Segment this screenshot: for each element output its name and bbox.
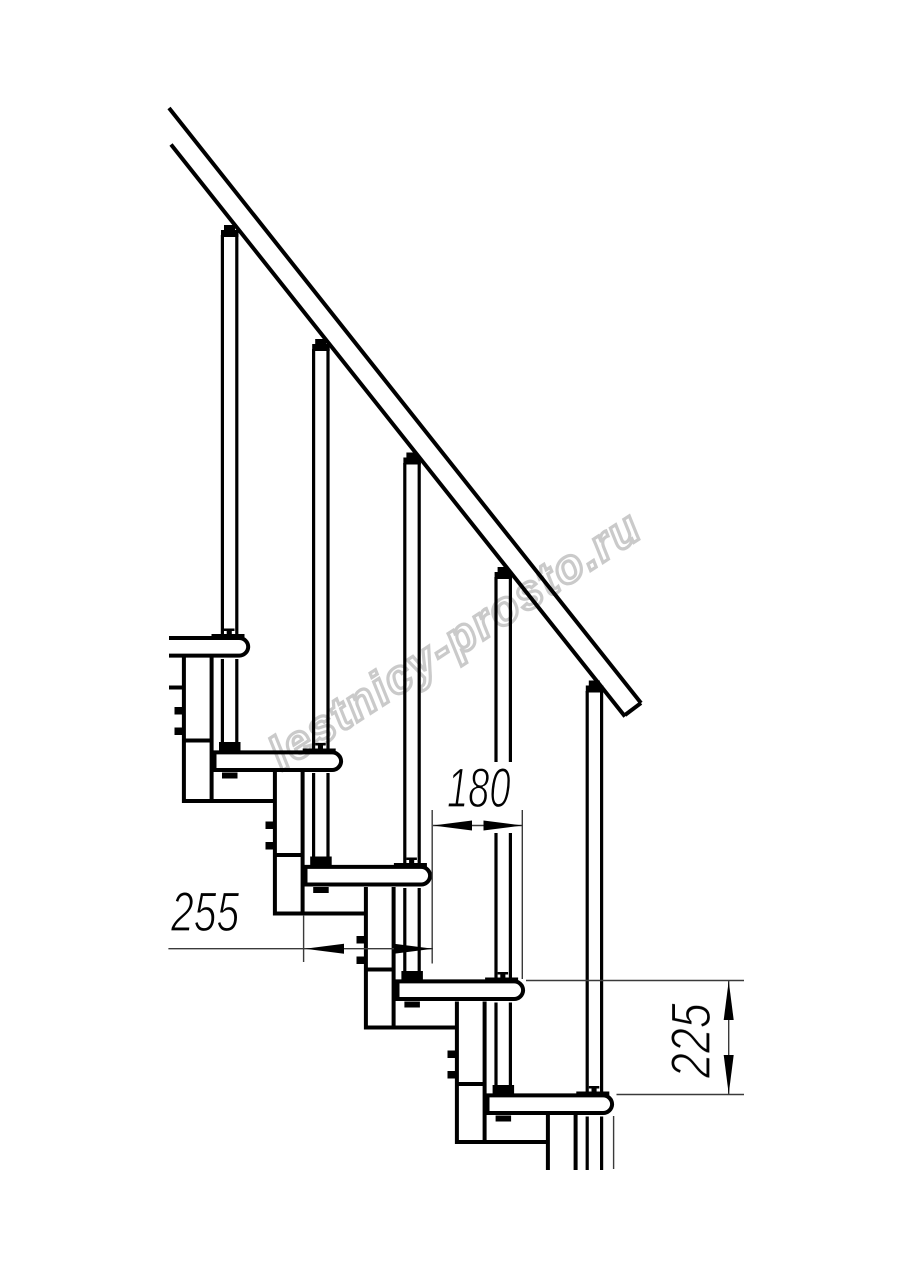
svg-text:255: 255 [170, 880, 240, 943]
svg-text:225: 225 [659, 1003, 722, 1079]
svg-text:180: 180 [447, 756, 511, 819]
